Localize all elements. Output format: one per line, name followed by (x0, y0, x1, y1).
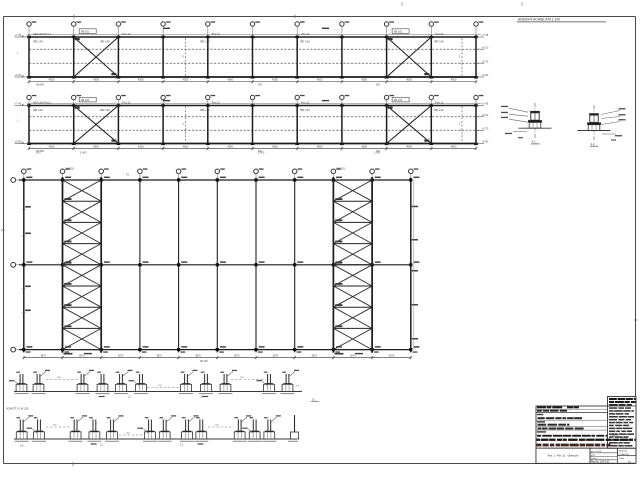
svg-text:4500: 4500 (406, 144, 412, 148)
svg-text:1 : 50: 1 : 50 (614, 445, 620, 447)
svg-text:3870: 3870 (311, 355, 317, 358)
svg-text:4500: 4500 (93, 78, 99, 82)
svg-text:VB 101: VB 101 (81, 98, 90, 102)
svg-text:Pos.12: Pos.12 (301, 32, 310, 36)
svg-text:3870: 3870 (350, 355, 356, 358)
svg-text:VB 101: VB 101 (394, 29, 403, 33)
svg-text:4500: 4500 (227, 144, 233, 148)
svg-text:4500: 4500 (451, 78, 457, 82)
svg-text:IPE 140: IPE 140 (100, 40, 110, 44)
svg-text:Blatt 1: Blatt 1 (612, 435, 619, 438)
svg-text:3870: 3870 (273, 355, 279, 358)
svg-text:Maßstab: Maßstab (619, 450, 628, 453)
svg-text:IPE 140: IPE 140 (434, 40, 444, 44)
svg-text:IPE 140: IPE 140 (33, 108, 43, 112)
svg-text:4500: 4500 (317, 144, 323, 148)
svg-text:4500: 4500 (227, 78, 233, 82)
svg-text:3870: 3870 (79, 355, 85, 358)
svg-text:IPE 140: IPE 140 (100, 108, 110, 112)
svg-text:+7.45: +7.45 (15, 33, 22, 37)
svg-text:4500: 4500 (272, 78, 278, 82)
svg-text:4500: 4500 (49, 144, 55, 148)
svg-text:+5.10: +5.10 (482, 45, 489, 49)
svg-text:4500: 4500 (138, 78, 144, 82)
svg-text:+5.10: +5.10 (482, 113, 489, 117)
svg-text:gez. 12.04.: gez. 12.04. (591, 451, 602, 453)
svg-text:5.400: 5.400 (258, 152, 265, 155)
svg-text:+7.45: +7.45 (15, 101, 22, 105)
svg-text:5.400: 5.400 (80, 152, 87, 155)
svg-text:gepr.: gepr. (591, 454, 596, 457)
svg-text:+0.00: +0.00 (482, 140, 489, 144)
svg-text:4500: 4500 (49, 78, 55, 82)
svg-text:4500: 4500 (272, 144, 278, 148)
svg-text:4500: 4500 (183, 78, 189, 82)
svg-text:4500: 4500 (406, 78, 412, 82)
svg-text:OK: OK (296, 386, 300, 388)
svg-text:VB 101: VB 101 (81, 29, 90, 33)
svg-text:4500: 4500 (361, 78, 367, 82)
svg-text:+2.70: +2.70 (482, 127, 489, 131)
svg-text:IPE 140: IPE 140 (200, 40, 210, 44)
svg-text:+7.45: +7.45 (482, 102, 489, 106)
svg-text:Pos. 1 - Pos. 11 - Übersicht: Pos. 1 - Pos. 11 - Übersicht (548, 455, 579, 458)
svg-text:VB 201: VB 201 (66, 166, 75, 170)
svg-text:+2.70: +2.70 (482, 59, 489, 63)
svg-text:HEA 200 Pos.1: HEA 200 Pos.1 (33, 100, 52, 104)
svg-text:4.2: 4.2 (591, 142, 595, 146)
svg-text:5.2: 5.2 (20, 443, 24, 447)
svg-text:3870: 3870 (389, 355, 395, 358)
svg-text:Pos.12: Pos.12 (212, 100, 221, 104)
svg-text:5.1: 5.1 (312, 398, 316, 402)
svg-text:4500: 4500 (183, 144, 189, 148)
svg-text:4500: 4500 (317, 78, 323, 82)
svg-text:4500: 4500 (93, 144, 99, 148)
svg-text:4.1: 4.1 (532, 140, 536, 144)
svg-text:IPE 140: IPE 140 (200, 108, 210, 112)
svg-text:VB 201: VB 201 (336, 166, 345, 170)
svg-text:3870: 3870 (156, 355, 162, 358)
svg-text:+0.00: +0.00 (15, 73, 22, 77)
svg-text:IPE 140: IPE 140 (300, 40, 310, 44)
svg-text:3870: 3870 (118, 355, 124, 358)
svg-text:45.000: 45.000 (36, 82, 44, 86)
svg-text:4500: 4500 (451, 144, 457, 148)
svg-text:38.700: 38.700 (200, 360, 208, 363)
svg-text:ANSICHT ACHSE A M 1:100: ANSICHT ACHSE A M 1:100 (518, 18, 560, 22)
svg-text:+7.45: +7.45 (482, 33, 489, 37)
svg-text:HEA 200 Pos.1: HEA 200 Pos.1 (33, 32, 52, 36)
svg-text:IPE 140: IPE 140 (434, 108, 444, 112)
svg-text:Pos.12: Pos.12 (435, 32, 444, 36)
svg-text:5.400: 5.400 (374, 152, 381, 155)
svg-text:4500: 4500 (361, 144, 367, 148)
svg-text:Pos.12: Pos.12 (122, 32, 131, 36)
svg-text:4500: 4500 (138, 144, 144, 148)
svg-text:Pos.12: Pos.12 (301, 100, 310, 104)
svg-text:Plan-Nr. 104-S-01: Plan-Nr. 104-S-01 (591, 461, 610, 464)
svg-text:3870: 3870 (234, 355, 240, 358)
svg-text:+0.00: +0.00 (482, 73, 489, 77)
svg-text:+0.00: +0.00 (15, 139, 22, 143)
svg-text:Datum: Datum (591, 457, 598, 460)
svg-text:Pos.12: Pos.12 (122, 100, 131, 104)
svg-text:450: 450 (376, 83, 381, 86)
svg-text:1:100/1:50: 1:100/1:50 (619, 454, 630, 456)
svg-text:45.0: 45.0 (36, 152, 41, 155)
svg-text:IPE 140: IPE 140 (33, 40, 43, 44)
svg-text:Pos.12: Pos.12 (212, 32, 221, 36)
svg-text:IPE 140: IPE 140 (300, 108, 310, 112)
svg-text:SCHNITT 1-1 M 1:50: SCHNITT 1-1 M 1:50 (6, 408, 29, 411)
svg-text:VB 101: VB 101 (394, 98, 403, 102)
svg-text:Pos.12: Pos.12 (435, 100, 444, 104)
svg-text:3870: 3870 (195, 355, 201, 358)
svg-text:3870: 3870 (40, 355, 46, 358)
svg-text:450: 450 (258, 83, 263, 86)
